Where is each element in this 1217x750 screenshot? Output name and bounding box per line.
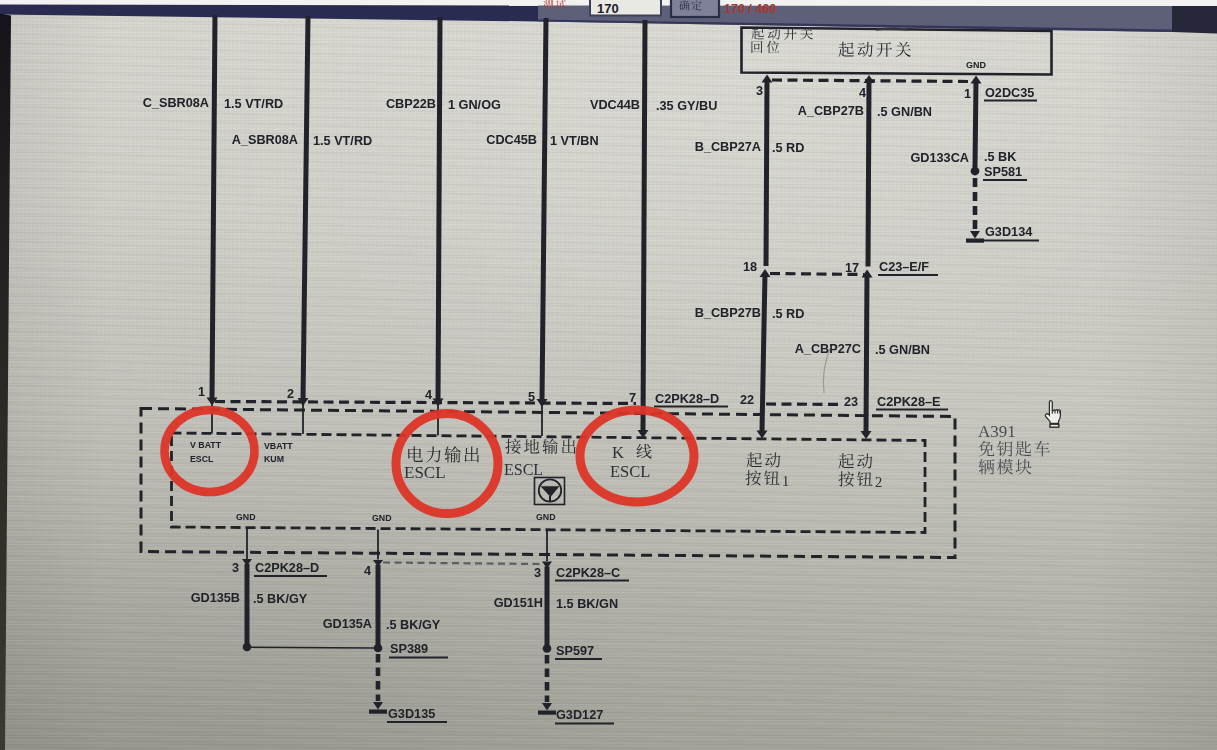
svg-text:3: 3 <box>534 566 541 580</box>
svg-text:.5 BK: .5 BK <box>984 150 1017 164</box>
svg-text:SP581: SP581 <box>984 165 1022 179</box>
svg-text:22: 22 <box>740 393 754 407</box>
svg-text:SP389: SP389 <box>390 642 428 656</box>
svg-text:GND: GND <box>372 513 392 523</box>
svg-text:3: 3 <box>756 84 763 98</box>
svg-text:C2PK28–E: C2PK28–E <box>877 395 940 409</box>
svg-text:C2PK28–C: C2PK28–C <box>556 566 620 580</box>
svg-text:4: 4 <box>364 564 371 578</box>
svg-text:SP597: SP597 <box>556 644 594 658</box>
svg-text:A_CBP27B: A_CBP27B <box>798 104 864 118</box>
svg-text:CDC45B: CDC45B <box>486 133 537 147</box>
svg-text:VBATT: VBATT <box>264 441 293 451</box>
svg-text:.5 GN/BN: .5 GN/BN <box>877 105 932 119</box>
svg-text:GND: GND <box>536 512 556 522</box>
svg-text:.5 GN/BN: .5 GN/BN <box>875 343 930 357</box>
svg-text:.35 GY/BU: .35 GY/BU <box>656 99 717 113</box>
svg-text:23: 23 <box>844 395 858 409</box>
svg-text:1.5 VT/RD: 1.5 VT/RD <box>224 97 283 111</box>
svg-text:1.5 BK/GN: 1.5 BK/GN <box>556 597 618 611</box>
svg-text:.5 RD: .5 RD <box>772 307 804 321</box>
svg-text:GD135A: GD135A <box>323 617 372 631</box>
svg-text:G3D134: G3D134 <box>985 225 1032 239</box>
svg-text:G3D127: G3D127 <box>556 708 603 722</box>
svg-text:A_SBR08A: A_SBR08A <box>232 133 298 147</box>
svg-text:B_CBP27B: B_CBP27B <box>695 306 761 320</box>
svg-text:1 GN/OG: 1 GN/OG <box>448 98 501 112</box>
svg-text:.5 BK/GY: .5 BK/GY <box>386 618 441 632</box>
svg-text:GND: GND <box>966 60 987 70</box>
svg-text:O2DC35: O2DC35 <box>985 86 1034 100</box>
svg-text:170 / 460: 170 / 460 <box>724 2 776 16</box>
svg-text:K: K <box>612 443 624 462</box>
svg-text:1: 1 <box>782 473 789 489</box>
svg-text:5: 5 <box>528 390 535 404</box>
svg-text:G3D135: G3D135 <box>388 707 435 721</box>
svg-text:1.5 VT/RD: 1.5 VT/RD <box>313 134 372 148</box>
svg-text:7: 7 <box>629 391 636 405</box>
svg-text:1 VT/BN: 1 VT/BN <box>550 134 599 148</box>
svg-text:GD135B: GD135B <box>191 591 240 605</box>
svg-text:C2PK28–D: C2PK28–D <box>655 392 719 406</box>
svg-text:A391: A391 <box>978 422 1016 441</box>
svg-text:4: 4 <box>425 388 432 402</box>
svg-text:VDC44B: VDC44B <box>590 98 640 112</box>
svg-text:1: 1 <box>198 385 205 399</box>
svg-text:ESCL: ESCL <box>404 463 446 482</box>
svg-text:.5 BK/GY: .5 BK/GY <box>253 592 308 606</box>
svg-text:C23–E/F: C23–E/F <box>879 260 929 274</box>
svg-text:2: 2 <box>287 387 294 401</box>
svg-text:B_CBP27A: B_CBP27A <box>695 140 761 154</box>
svg-text:170: 170 <box>597 1 619 16</box>
svg-text:GD133CA: GD133CA <box>910 151 969 165</box>
svg-text:V BATT: V BATT <box>190 440 222 450</box>
svg-text:ESCL: ESCL <box>610 462 650 481</box>
svg-text:4: 4 <box>859 86 866 100</box>
svg-text:1: 1 <box>964 87 971 101</box>
svg-text:KUM: KUM <box>264 454 284 464</box>
svg-text:2: 2 <box>875 474 882 490</box>
svg-text:CBP22B: CBP22B <box>386 97 436 111</box>
svg-text:C_SBR08A: C_SBR08A <box>143 96 209 110</box>
svg-text:18: 18 <box>743 260 757 274</box>
svg-text:ESCL: ESCL <box>504 461 543 478</box>
svg-text:.5 RD: .5 RD <box>772 141 804 155</box>
svg-text:ESCL: ESCL <box>190 454 214 464</box>
svg-text:3: 3 <box>232 561 239 575</box>
svg-text:GD151H: GD151H <box>494 596 543 610</box>
svg-text:C2PK28–D: C2PK28–D <box>255 561 319 575</box>
svg-text:GND: GND <box>236 512 256 522</box>
